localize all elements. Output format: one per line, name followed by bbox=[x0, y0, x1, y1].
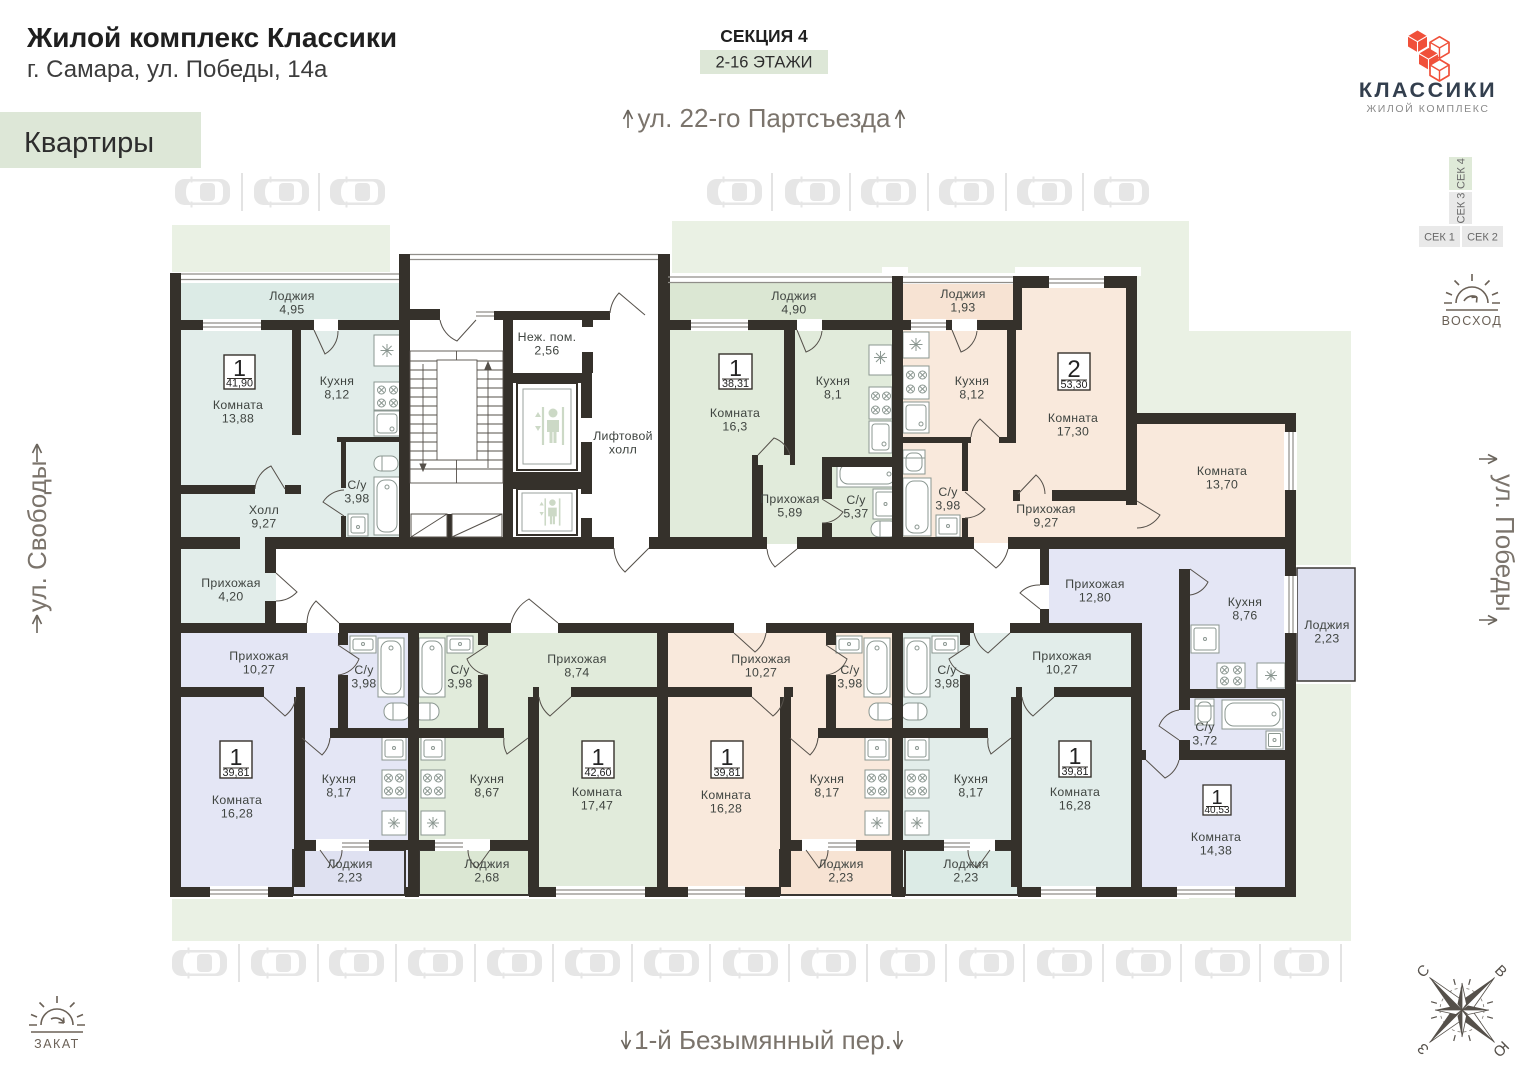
svg-text:Лоджия: Лоджия bbox=[269, 289, 314, 303]
svg-text:3,98: 3,98 bbox=[934, 677, 959, 691]
svg-text:Кухня: Кухня bbox=[322, 772, 356, 786]
svg-text:3,72: 3,72 bbox=[1192, 734, 1217, 748]
svg-text:3,98: 3,98 bbox=[344, 492, 369, 506]
svg-text:Лифтовой: Лифтовой bbox=[593, 429, 653, 443]
svg-text:2,23: 2,23 bbox=[1314, 632, 1339, 646]
svg-text:16,3: 16,3 bbox=[722, 420, 747, 434]
svg-text:16,28: 16,28 bbox=[710, 802, 742, 816]
svg-text:8,1: 8,1 bbox=[824, 388, 842, 402]
svg-text:Комната: Комната bbox=[1048, 411, 1098, 425]
svg-text:Неж. пом.: Неж. пом. bbox=[518, 330, 577, 344]
svg-text:С/у: С/у bbox=[937, 663, 957, 677]
svg-text:Комната: Комната bbox=[213, 398, 263, 412]
svg-text:10,27: 10,27 bbox=[1046, 663, 1078, 677]
svg-text:Холл: Холл bbox=[249, 503, 279, 517]
svg-text:Лоджия: Лоджия bbox=[943, 857, 988, 871]
svg-text:Кухня: Кухня bbox=[816, 374, 850, 388]
svg-text:СЕК 3: СЕК 3 bbox=[1456, 193, 1468, 224]
svg-text:Прихожая: Прихожая bbox=[760, 492, 819, 506]
svg-text:42,60: 42,60 bbox=[584, 767, 611, 779]
svg-text:13,88: 13,88 bbox=[222, 412, 254, 426]
svg-text:2-16 ЭТАЖИ: 2-16 ЭТАЖИ bbox=[715, 54, 812, 72]
svg-text:2,23: 2,23 bbox=[828, 871, 853, 885]
svg-text:1-й Безымянный пер.: 1-й Безымянный пер. bbox=[634, 1025, 892, 1055]
svg-text:5,89: 5,89 bbox=[777, 506, 802, 520]
svg-text:8,17: 8,17 bbox=[958, 786, 983, 800]
svg-text:3,98: 3,98 bbox=[447, 677, 472, 691]
svg-text:Лоджия: Лоджия bbox=[464, 857, 509, 871]
svg-text:8,12: 8,12 bbox=[324, 388, 349, 402]
svg-text:39,81: 39,81 bbox=[222, 767, 249, 779]
svg-text:53,30: 53,30 bbox=[1060, 379, 1087, 391]
svg-text:С/у: С/у bbox=[846, 493, 866, 507]
svg-text:9,27: 9,27 bbox=[1033, 516, 1058, 530]
svg-text:Комната: Комната bbox=[1050, 785, 1100, 799]
svg-text:Прихожая: Прихожая bbox=[547, 652, 606, 666]
svg-text:ВОСХОД: ВОСХОД bbox=[1442, 314, 1503, 328]
svg-text:Лоджия: Лоджия bbox=[327, 857, 372, 871]
svg-text:Комната: Комната bbox=[710, 406, 760, 420]
svg-text:8,76: 8,76 bbox=[1232, 609, 1257, 623]
svg-text:3,98: 3,98 bbox=[935, 499, 960, 513]
svg-text:СЕК 4: СЕК 4 bbox=[1456, 158, 1468, 189]
svg-text:Кухня: Кухня bbox=[1228, 595, 1262, 609]
svg-text:ул. Свободы: ул. Свободы bbox=[22, 461, 52, 612]
svg-text:Лоджия: Лоджия bbox=[818, 857, 863, 871]
svg-text:2,23: 2,23 bbox=[953, 871, 978, 885]
svg-text:г. Самара, ул. Победы, 14а: г. Самара, ул. Победы, 14а bbox=[27, 56, 328, 83]
svg-text:8,67: 8,67 bbox=[474, 786, 499, 800]
svg-text:СЕК 2: СЕК 2 bbox=[1467, 232, 1498, 244]
svg-text:Кухня: Кухня bbox=[320, 374, 354, 388]
svg-text:4,20: 4,20 bbox=[218, 590, 243, 604]
svg-text:4,90: 4,90 bbox=[781, 303, 806, 317]
svg-text:Прихожая: Прихожая bbox=[201, 576, 260, 590]
svg-text:Прихожая: Прихожая bbox=[1065, 577, 1124, 591]
svg-text:2,68: 2,68 bbox=[474, 871, 499, 885]
svg-text:ул. Победы: ул. Победы bbox=[1490, 474, 1520, 612]
svg-text:Прихожая: Прихожая bbox=[229, 649, 288, 663]
svg-text:10,27: 10,27 bbox=[243, 663, 275, 677]
svg-text:9,27: 9,27 bbox=[251, 517, 276, 531]
svg-text:Кухня: Кухня bbox=[470, 772, 504, 786]
svg-text:2,56: 2,56 bbox=[534, 344, 559, 358]
svg-text:10,27: 10,27 bbox=[745, 666, 777, 680]
svg-text:8,12: 8,12 bbox=[959, 388, 984, 402]
svg-text:Прихожая: Прихожая bbox=[1016, 502, 1075, 516]
svg-text:17,47: 17,47 bbox=[581, 799, 613, 813]
svg-text:С/у: С/у bbox=[354, 663, 374, 677]
svg-text:Комната: Комната bbox=[212, 793, 262, 807]
svg-text:ЗАКАТ: ЗАКАТ bbox=[34, 1037, 80, 1051]
svg-text:Комната: Комната bbox=[701, 788, 751, 802]
svg-text:8,17: 8,17 bbox=[814, 786, 839, 800]
svg-text:39,81: 39,81 bbox=[1061, 766, 1088, 778]
svg-text:8,74: 8,74 bbox=[564, 666, 589, 680]
svg-text:ЖИЛОЙ КОМПЛЕКС: ЖИЛОЙ КОМПЛЕКС bbox=[1366, 102, 1489, 115]
svg-text:Лоджия: Лоджия bbox=[771, 289, 816, 303]
svg-text:17,30: 17,30 bbox=[1057, 425, 1089, 439]
svg-text:Комната: Комната bbox=[572, 785, 622, 799]
svg-text:16,28: 16,28 bbox=[1059, 799, 1091, 813]
svg-text:СЕК 1: СЕК 1 bbox=[1424, 232, 1455, 244]
svg-text:Прихожая: Прихожая bbox=[1032, 649, 1091, 663]
svg-text:Кухня: Кухня bbox=[954, 772, 988, 786]
svg-text:1,93: 1,93 bbox=[950, 301, 975, 315]
svg-text:12,80: 12,80 bbox=[1079, 591, 1111, 605]
svg-text:КЛАССИКИ: КЛАССИКИ bbox=[1359, 78, 1497, 102]
svg-text:41,90: 41,90 bbox=[226, 378, 253, 390]
svg-text:14,38: 14,38 bbox=[1200, 844, 1232, 858]
svg-text:4,95: 4,95 bbox=[279, 303, 304, 317]
svg-text:С/у: С/у bbox=[840, 663, 860, 677]
svg-text:Лоджия: Лоджия bbox=[1304, 618, 1349, 632]
svg-text:Прихожая: Прихожая bbox=[731, 652, 790, 666]
svg-text:С/у: С/у bbox=[347, 478, 367, 492]
svg-text:5,37: 5,37 bbox=[843, 507, 868, 521]
svg-text:С/у: С/у bbox=[938, 485, 958, 499]
svg-text:С/у: С/у bbox=[450, 663, 470, 677]
svg-text:40,53: 40,53 bbox=[1204, 805, 1229, 816]
svg-text:холл: холл bbox=[609, 443, 637, 457]
svg-text:Лоджия: Лоджия bbox=[940, 287, 985, 301]
svg-text:С/у: С/у bbox=[1195, 720, 1215, 734]
svg-text:39,81: 39,81 bbox=[713, 767, 740, 779]
svg-text:2,23: 2,23 bbox=[337, 871, 362, 885]
svg-text:8,17: 8,17 bbox=[326, 786, 351, 800]
svg-text:3,98: 3,98 bbox=[837, 677, 862, 691]
svg-text:Кухня: Кухня bbox=[810, 772, 844, 786]
svg-text:3,98: 3,98 bbox=[351, 677, 376, 691]
svg-text:13,70: 13,70 bbox=[1206, 478, 1238, 492]
svg-text:Комната: Комната bbox=[1191, 830, 1241, 844]
svg-text:Комната: Комната bbox=[1197, 464, 1247, 478]
svg-text:ул. 22-го Партсъезда: ул. 22-го Партсъезда bbox=[638, 103, 892, 133]
svg-text:16,28: 16,28 bbox=[221, 807, 253, 821]
svg-text:Квартиры: Квартиры bbox=[24, 127, 154, 159]
svg-text:38,31: 38,31 bbox=[722, 378, 749, 390]
svg-text:СЕКЦИЯ 4: СЕКЦИЯ 4 bbox=[720, 26, 808, 46]
svg-text:Кухня: Кухня bbox=[955, 374, 989, 388]
svg-text:Жилой комплекс Классики: Жилой комплекс Классики bbox=[26, 22, 397, 53]
